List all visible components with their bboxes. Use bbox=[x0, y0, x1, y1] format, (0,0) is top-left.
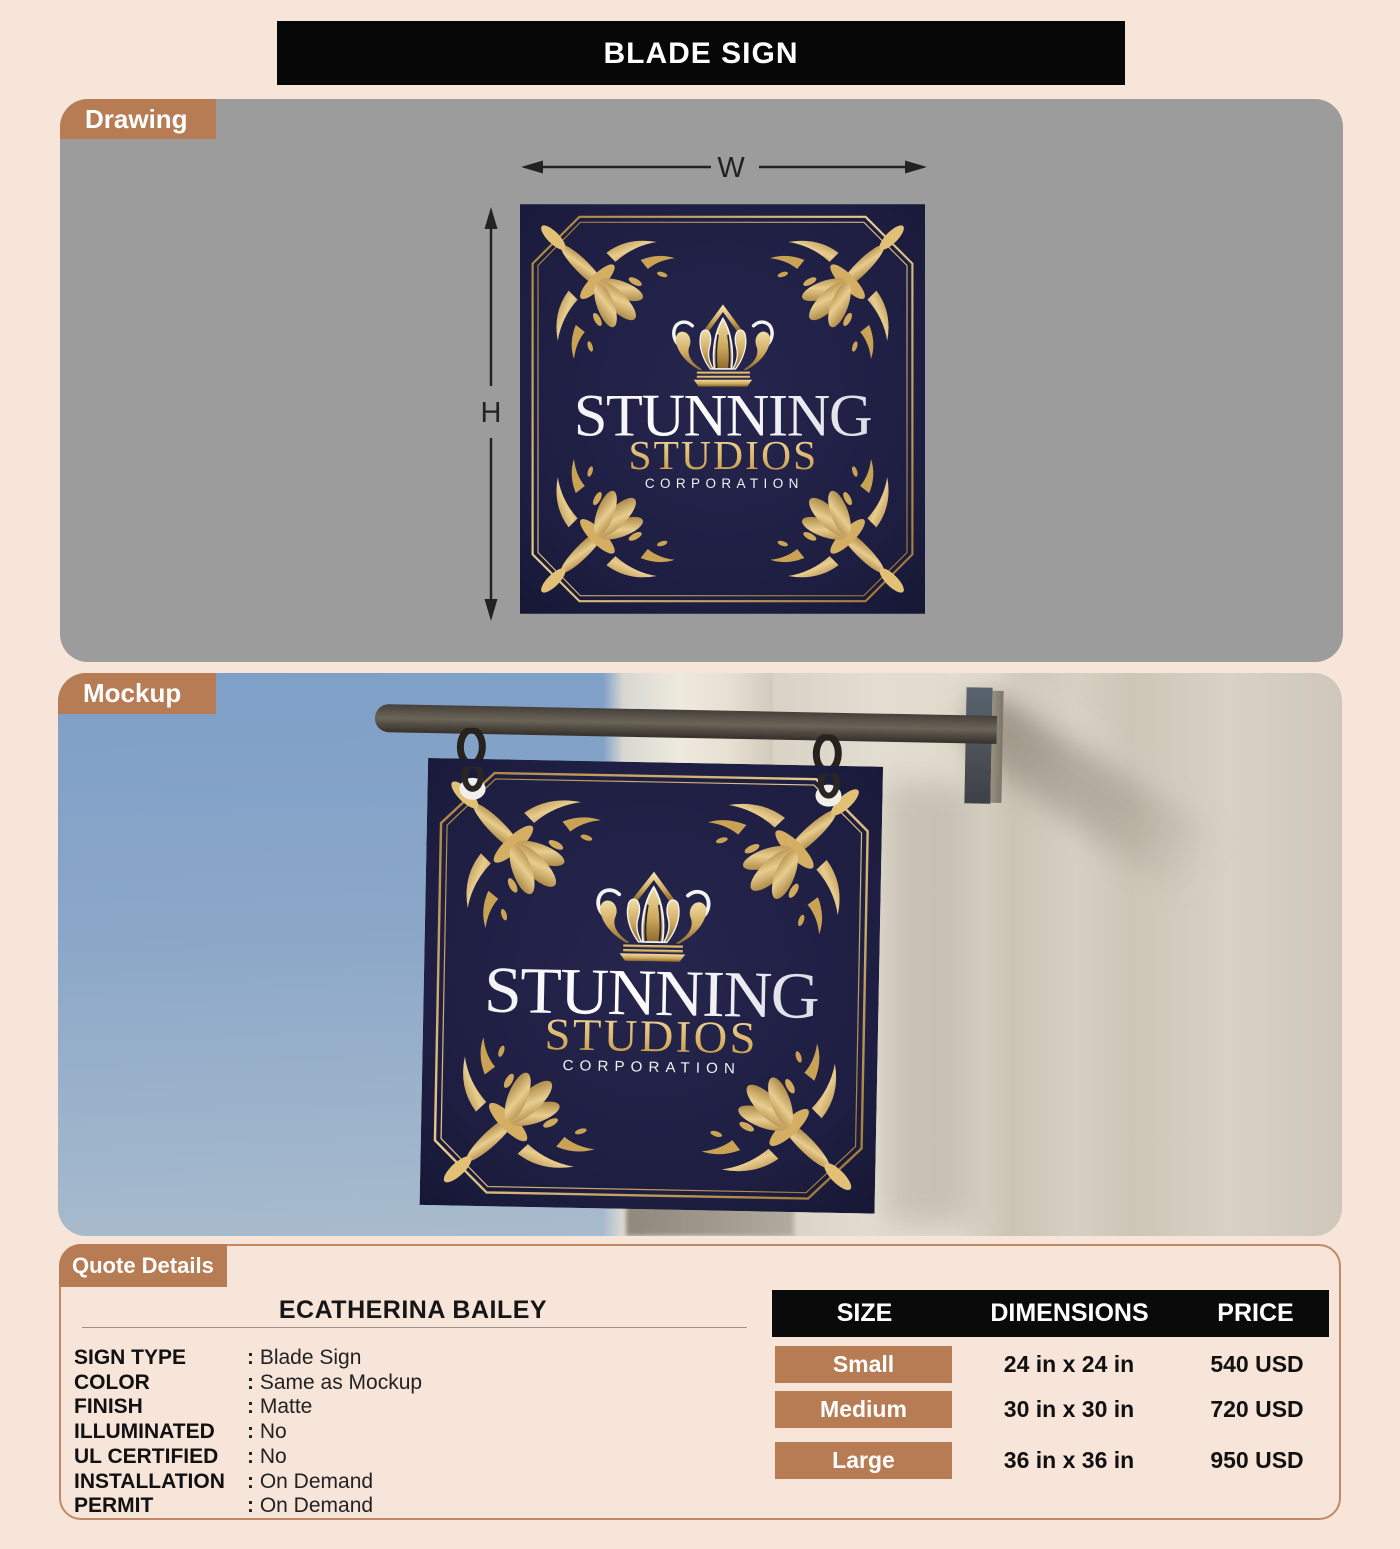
svg-text:H: H bbox=[481, 397, 502, 429]
svg-text:W: W bbox=[717, 152, 745, 184]
